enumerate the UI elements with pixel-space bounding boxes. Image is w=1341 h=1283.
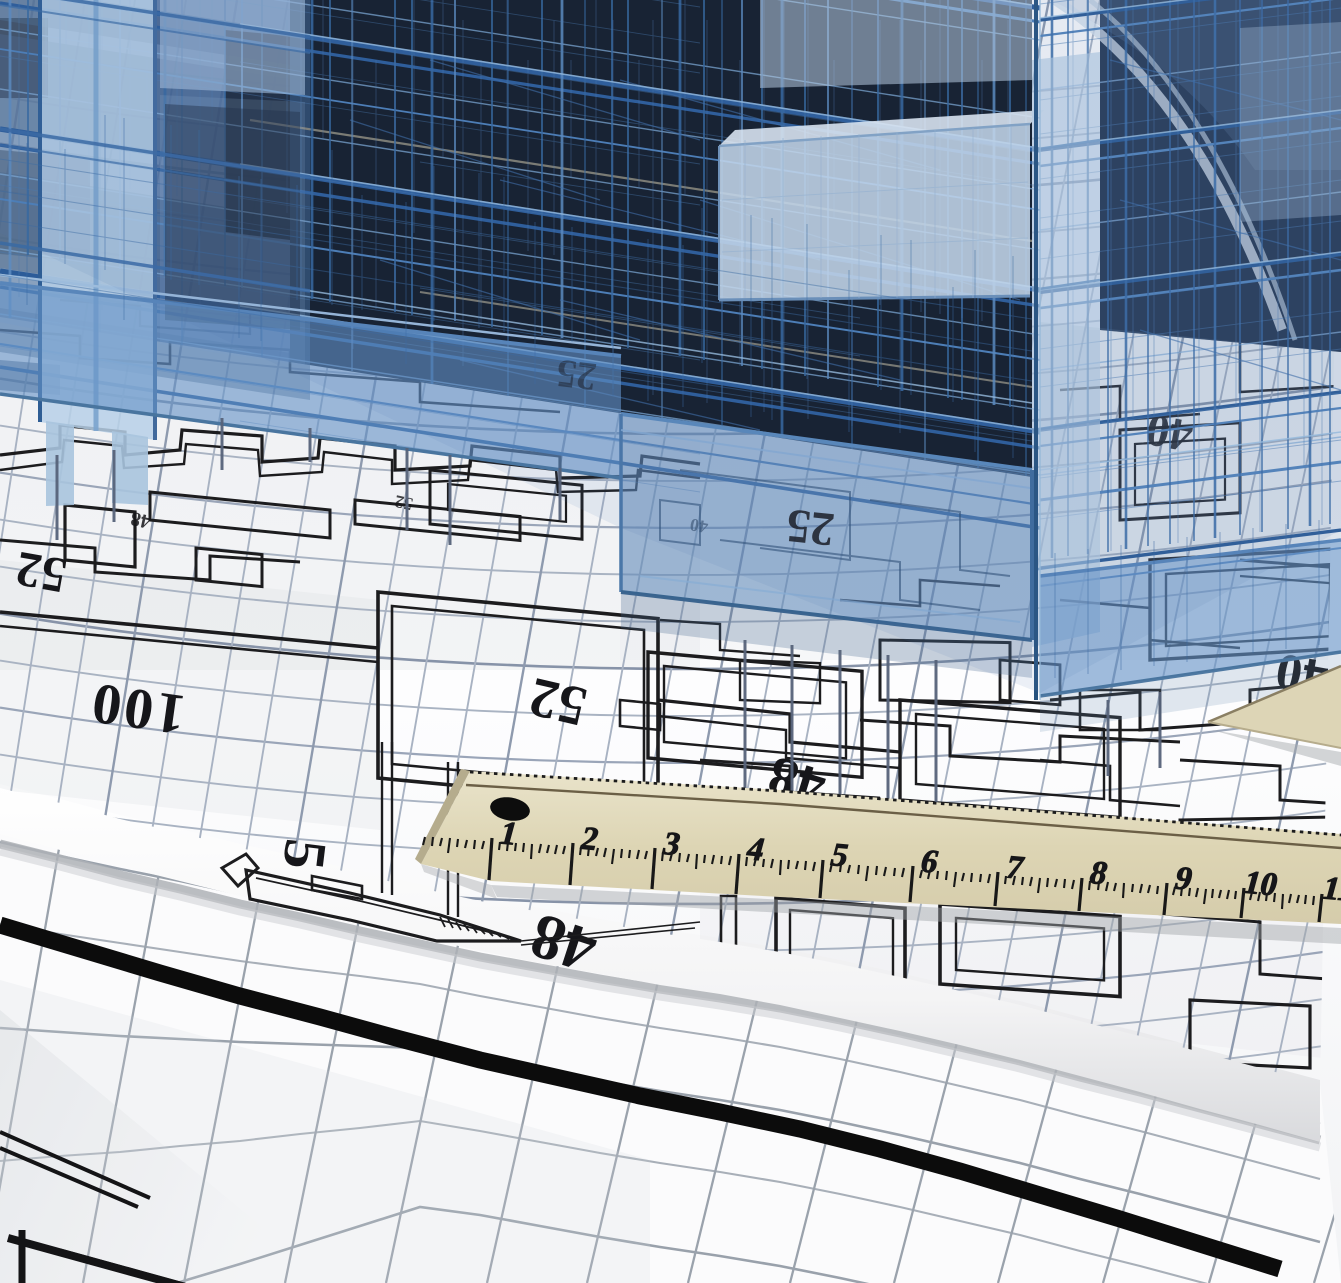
svg-text:52: 52 — [12, 541, 71, 605]
svg-text:100: 100 — [85, 670, 189, 748]
